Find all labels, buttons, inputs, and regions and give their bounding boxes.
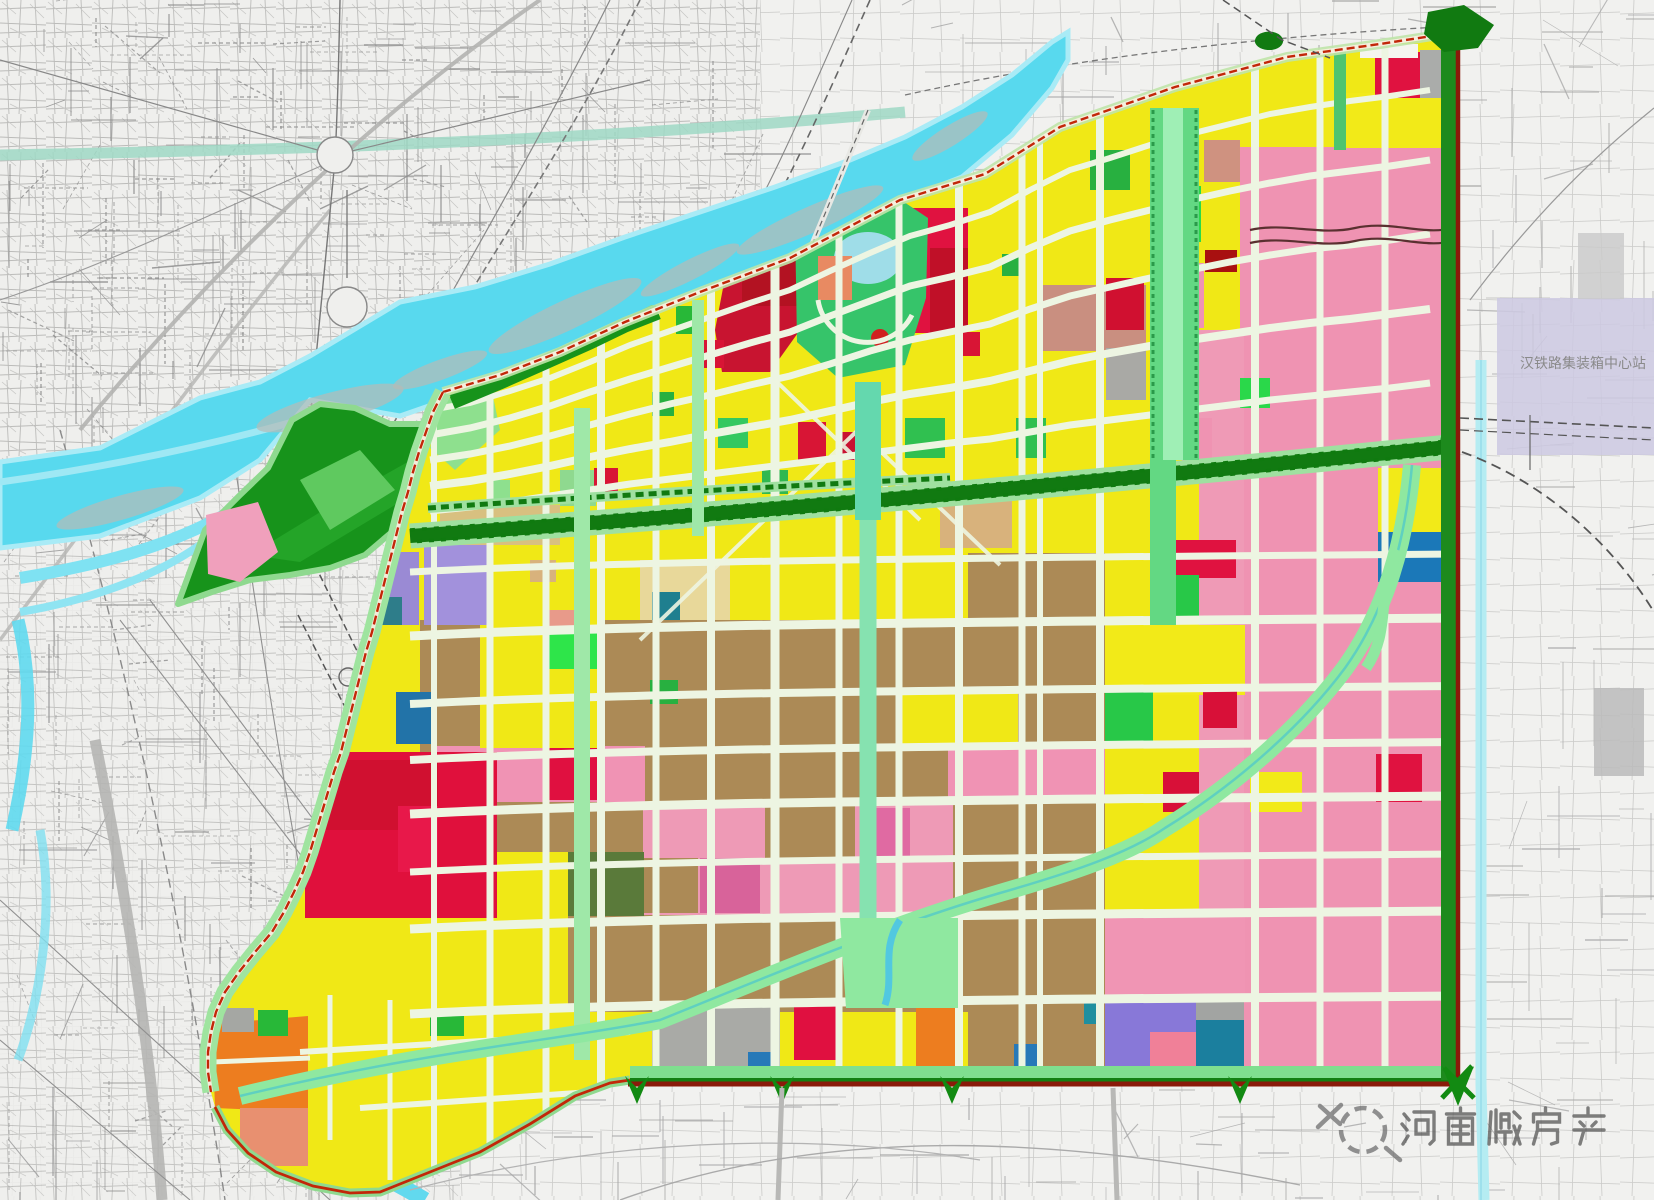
svg-text:汉铁路集装箱中心站: 汉铁路集装箱中心站	[1520, 355, 1646, 371]
